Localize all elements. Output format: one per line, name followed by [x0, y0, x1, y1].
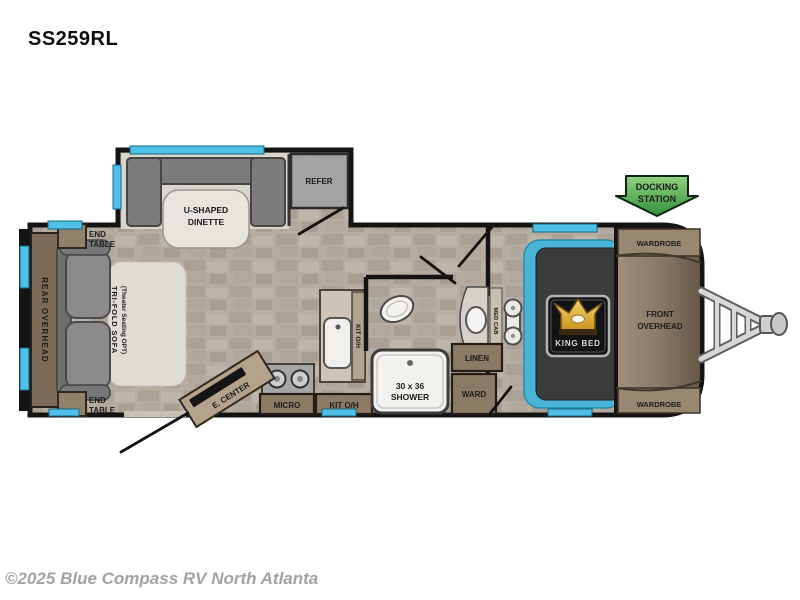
- tv-mount-dot: [511, 334, 515, 338]
- king-bed-label: KING BED: [555, 339, 601, 348]
- docking-label-line2: STATION: [638, 194, 676, 204]
- floorplan-svg: SS259RL REAR OVERHEAD TRI-FOLD SOFA (The…: [0, 0, 800, 600]
- tv-mount-dot: [511, 306, 515, 310]
- shower-label-line2: SHOWER: [391, 392, 429, 402]
- med-cab-label: MED CAB: [492, 307, 498, 334]
- ward-label: WARD: [462, 390, 487, 399]
- sofa-cushion: [66, 252, 110, 318]
- front-cap: WARDROBE FRONT OVERHEAD WARDROBE: [616, 227, 702, 415]
- end-table-label: END: [89, 230, 106, 239]
- sink-faucet: [336, 325, 341, 330]
- sofa-cushion: [66, 322, 110, 388]
- shower-label-line1: 30 x 36: [396, 381, 425, 391]
- linen-label: LINEN: [465, 354, 489, 363]
- entry-door-opening: [124, 411, 186, 417]
- page-title: SS259RL: [28, 28, 118, 50]
- end-table-label: TABLE: [89, 240, 116, 249]
- rear-overhead-label: REAR OVERHEAD: [40, 277, 49, 363]
- front-overhead-label-line2: OVERHEAD: [637, 322, 683, 331]
- end-table-label: END: [89, 396, 106, 405]
- window: [49, 409, 79, 416]
- shower-drain: [407, 360, 413, 366]
- rear-overhead-cabinet: REAR OVERHEAD: [31, 233, 58, 407]
- dinette-bench-right: [251, 158, 285, 226]
- window: [20, 348, 29, 390]
- window: [130, 146, 264, 154]
- hitch-coupler-tip: [771, 313, 787, 335]
- copyright-watermark: ©2025 Blue Compass RV North Atlanta: [5, 569, 318, 588]
- kit-oh-wall-label: KIT O/H: [354, 324, 361, 348]
- window: [48, 221, 82, 229]
- crown-band: [559, 329, 597, 335]
- dinette-label-line2: DINETTE: [188, 217, 225, 227]
- bath-sink: [466, 307, 486, 333]
- sofa-label-line2: (Theater Seating OPT): [120, 286, 127, 354]
- burner-center: [297, 376, 303, 382]
- micro-label: MICRO: [274, 401, 301, 410]
- wardrobe-bottom-label: WARDROBE: [637, 400, 682, 409]
- wardrobe-top-label: WARDROBE: [637, 239, 682, 248]
- window: [113, 165, 121, 209]
- window: [322, 409, 356, 416]
- tv-mount-icon: [505, 300, 522, 345]
- front-overhead-label-line1: FRONT: [646, 310, 674, 319]
- window: [533, 224, 597, 232]
- dinette-label-line1: U-SHAPED: [184, 205, 228, 215]
- window: [548, 409, 592, 416]
- window: [20, 246, 29, 288]
- docking-label-line1: DOCKING: [636, 182, 679, 192]
- refrigerator: REFER: [291, 154, 348, 208]
- end-table-label: TABLE: [89, 406, 116, 415]
- crown-jewel: [572, 315, 585, 323]
- dinette-bench-left: [127, 158, 161, 226]
- sofa-label-line1: TRI-FOLD SOFA: [110, 286, 119, 354]
- refer-label: REFER: [305, 177, 332, 186]
